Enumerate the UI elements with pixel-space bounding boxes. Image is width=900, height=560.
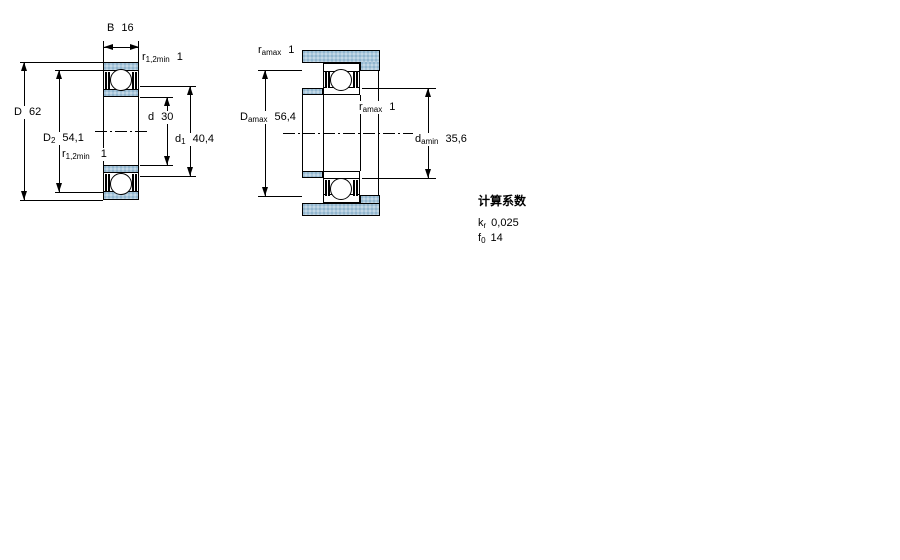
arrowhead-left [104, 44, 113, 50]
arrowhead-up [164, 97, 170, 106]
arrowhead-down [425, 169, 431, 178]
extension-line [55, 70, 103, 71]
bearing-section-top [103, 62, 139, 97]
seal-right [132, 174, 137, 191]
dim-label-d1: d140,4 [173, 133, 216, 146]
extension-line [362, 178, 436, 179]
dimension-line-d1 [190, 86, 191, 176]
factor-f0: f014 [476, 232, 505, 245]
arrowhead-up [262, 70, 268, 79]
dim-label-damin: damin35,6 [413, 133, 469, 146]
factor-kr: kr0,025 [476, 217, 521, 230]
dim-label-r12min-top: r1,2min1 [140, 51, 185, 64]
arrowhead-down [262, 187, 268, 196]
arrowhead-up [56, 70, 62, 79]
housing-block-bottom [302, 203, 380, 216]
shaft-shoulder-top [302, 88, 323, 95]
seal-right [353, 72, 358, 88]
axis-line [95, 131, 148, 132]
dim-label-r12min-bottom: r1,2min1 [60, 148, 109, 161]
ball [330, 69, 352, 91]
extension-line [258, 196, 302, 197]
extension-line [140, 165, 173, 166]
shaft-shoulder-bottom [302, 171, 323, 178]
bearing-section-bottom [323, 171, 360, 203]
dim-label-ramax-mid: ramax1 [357, 101, 397, 114]
ball [110, 173, 132, 195]
arrowhead-down [187, 167, 193, 176]
arrowhead-up [187, 86, 193, 95]
arrowhead-up [425, 88, 431, 97]
dim-label-D2: D254,1 [41, 132, 86, 145]
arrowhead-up [21, 62, 27, 71]
extension-line [55, 192, 103, 193]
dim-label-d: d30 [146, 111, 175, 124]
bearing-dimension-drawing: B16 r1,2min1 [0, 0, 900, 560]
dim-label-D: D62 [12, 106, 43, 119]
housing-shoulder-top [360, 62, 380, 71]
bearing-section-bottom [103, 165, 139, 200]
dim-label-B: B16 [105, 22, 136, 35]
ball [110, 69, 132, 91]
dim-label-Damax: Damax56,4 [238, 111, 298, 124]
dimension-line-D2 [59, 70, 60, 192]
dim-label-ramax-top: ramax1 [256, 44, 296, 57]
ball [330, 178, 352, 200]
calculation-factors-title: 计算系数 [476, 195, 528, 208]
arrowhead-down [21, 191, 27, 200]
extension-line [20, 200, 103, 201]
inner-ring [104, 166, 138, 173]
arrowhead-down [56, 183, 62, 192]
extension-line [20, 62, 103, 63]
seal-right [353, 180, 358, 196]
arrowhead-down [164, 156, 170, 165]
dimension-line-Damax [265, 70, 266, 196]
dimension-line-D [24, 62, 25, 200]
arrowhead-right [130, 44, 139, 50]
extension-line [140, 176, 196, 177]
bearing-section-top [323, 63, 360, 95]
seal-right [132, 72, 137, 89]
dimension-line-d [167, 97, 168, 165]
